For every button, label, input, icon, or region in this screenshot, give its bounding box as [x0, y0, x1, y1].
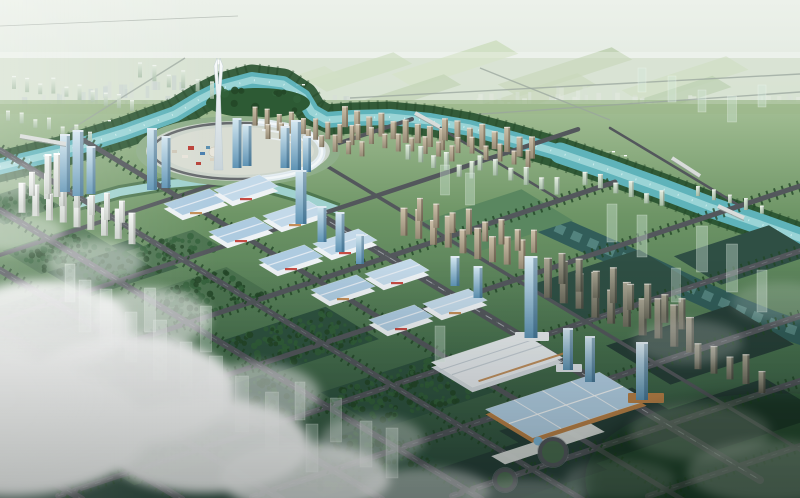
- screenshot-root: [0, 0, 800, 498]
- aerial-city-render: [0, 0, 800, 498]
